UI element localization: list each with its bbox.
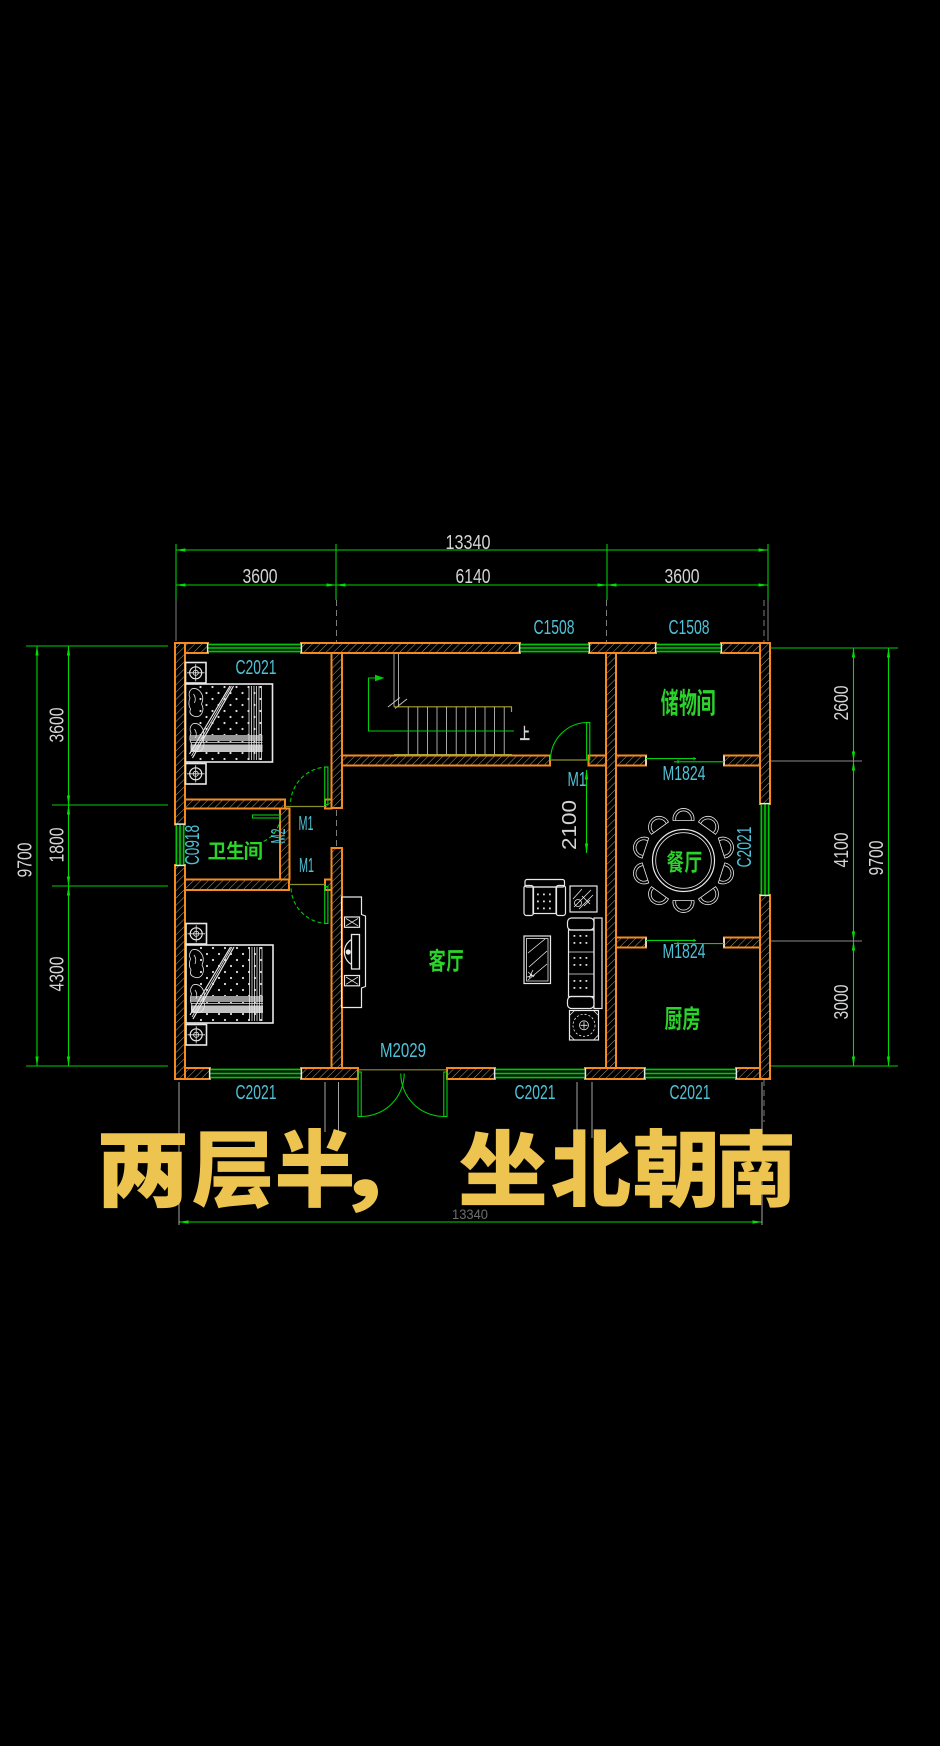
svg-text:M1824: M1824 xyxy=(663,763,706,785)
svg-text:9700: 9700 xyxy=(15,843,37,878)
svg-text:4100: 4100 xyxy=(831,833,853,868)
svg-text:C2021: C2021 xyxy=(236,1082,277,1104)
svg-text:3000: 3000 xyxy=(831,985,853,1020)
svg-text:C0918: C0918 xyxy=(182,825,204,865)
svg-text:4300: 4300 xyxy=(47,957,69,992)
svg-text:13340: 13340 xyxy=(446,532,491,554)
svg-text:3600: 3600 xyxy=(665,566,700,588)
svg-text:6140: 6140 xyxy=(456,566,491,588)
svg-text:9700: 9700 xyxy=(866,841,888,876)
svg-text:M2: M2 xyxy=(268,829,290,844)
svg-text:2100: 2100 xyxy=(559,800,581,850)
svg-text:C2021: C2021 xyxy=(515,1082,556,1104)
svg-text:C2021: C2021 xyxy=(236,657,277,679)
svg-text:C2021: C2021 xyxy=(670,1082,711,1104)
svg-text:C1508: C1508 xyxy=(534,617,575,639)
svg-text:3600: 3600 xyxy=(243,566,278,588)
svg-text:3600: 3600 xyxy=(47,708,69,743)
svg-text:M1824: M1824 xyxy=(663,941,706,963)
svg-text:13340: 13340 xyxy=(452,1206,488,1222)
svg-text:M2029: M2029 xyxy=(380,1040,426,1062)
svg-text:C2021: C2021 xyxy=(734,827,756,868)
svg-text:M1: M1 xyxy=(568,769,587,791)
svg-text:1800: 1800 xyxy=(47,828,69,863)
svg-text:C1508: C1508 xyxy=(669,617,710,639)
svg-text:M1: M1 xyxy=(299,855,314,877)
svg-text:M1: M1 xyxy=(299,813,314,835)
svg-text:2600: 2600 xyxy=(831,686,853,721)
